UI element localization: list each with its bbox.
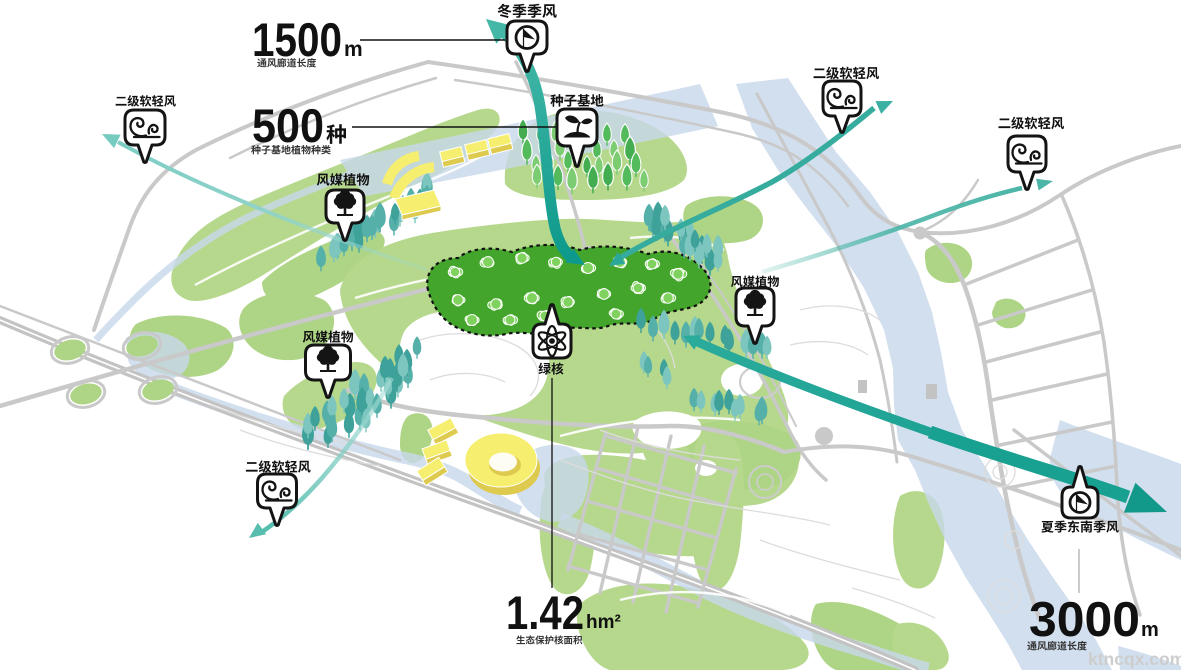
svg-text:500: 500 xyxy=(252,99,324,152)
svg-text:1500: 1500 xyxy=(252,13,342,66)
svg-text:m: m xyxy=(1141,619,1159,641)
svg-text:hm²: hm² xyxy=(586,612,621,633)
svg-text:ktncqx.com: ktncqx.com xyxy=(1088,649,1181,669)
svg-text:3000: 3000 xyxy=(1029,593,1140,647)
svg-text:1.42: 1.42 xyxy=(506,586,584,639)
svg-text:m: m xyxy=(344,38,363,61)
